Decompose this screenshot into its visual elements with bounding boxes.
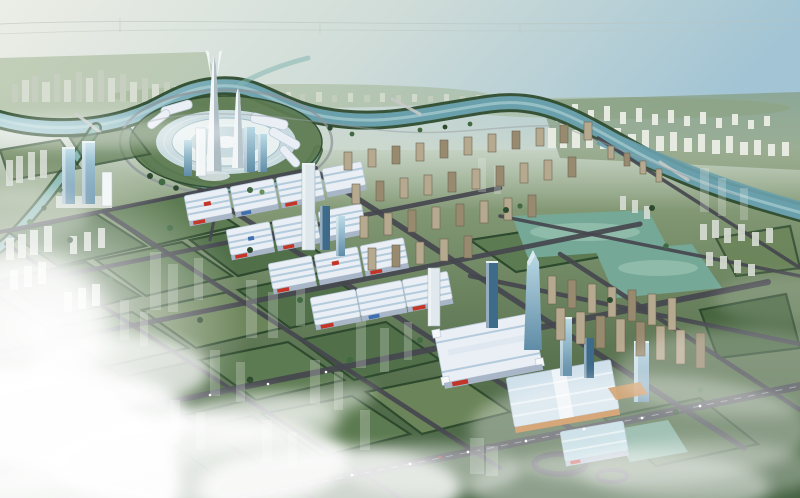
glass-tower — [184, 140, 192, 176]
render-canvas: Bird's-eye CGI masterplan rendering of a… — [0, 0, 800, 498]
cloud — [30, 334, 210, 406]
aerial-masterplan-render: Bird's-eye CGI masterplan rendering of a… — [0, 0, 800, 498]
